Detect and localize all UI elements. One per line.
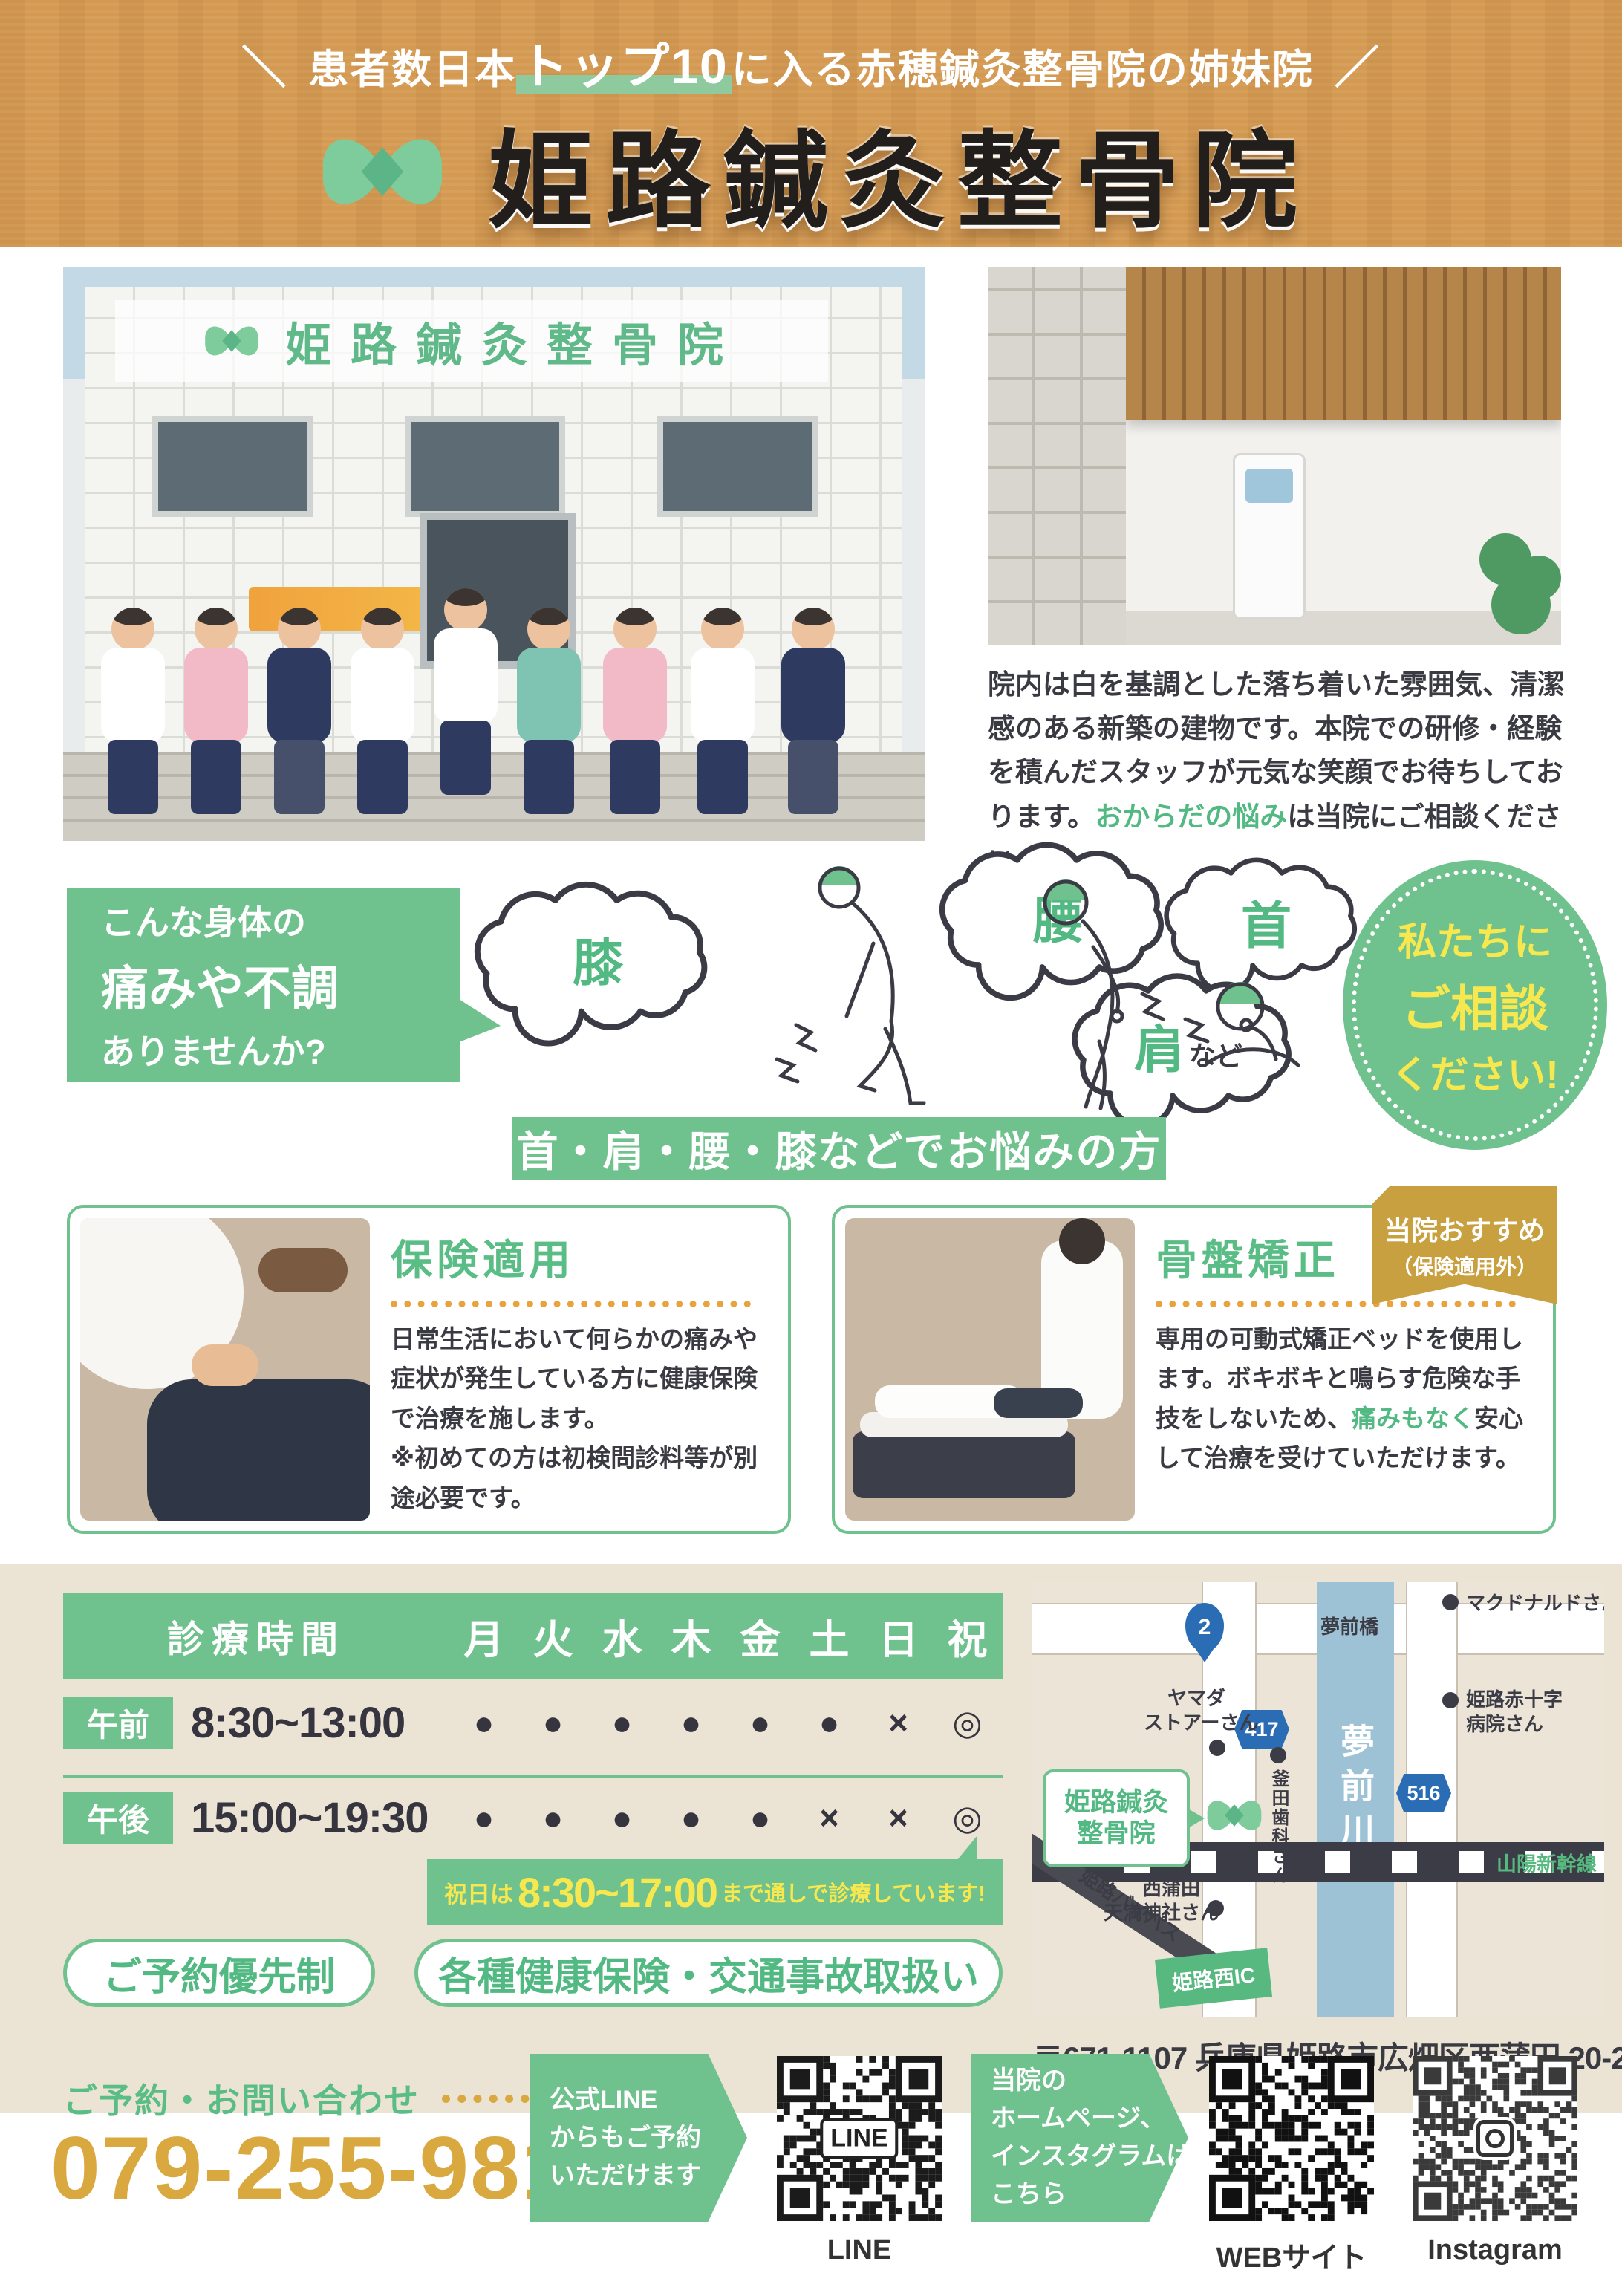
am-mark-wed: ● — [587, 1703, 657, 1743]
am-time: 8:30~13:00 — [191, 1698, 405, 1748]
day-mon: 月 — [449, 1607, 518, 1665]
pm-time: 15:00~19:30 — [191, 1793, 429, 1843]
ask-line3: ありませんか? — [101, 1025, 460, 1074]
staff-figure — [99, 608, 167, 816]
river-yumesaki: 夢前川 — [1317, 1582, 1394, 2017]
am-mark-mon: ● — [449, 1703, 518, 1743]
web-box-line2: ホームページ、 — [991, 2100, 1188, 2138]
instagram-qr-label: Instagram — [1413, 2234, 1577, 2266]
am-mark-sun: × — [864, 1703, 933, 1743]
pelvis-card-photo — [845, 1218, 1135, 1521]
am-mark-fri: ● — [726, 1703, 795, 1743]
staff-figure — [515, 608, 583, 816]
am-mark-tue: ● — [518, 1703, 587, 1743]
pm-mark-wed: ● — [587, 1798, 657, 1838]
bridge-label: 夢前橋 — [1320, 1615, 1378, 1639]
tagline-close-slash: ／ — [1314, 43, 1401, 93]
line-qr-label: LINE — [777, 2234, 942, 2266]
window — [405, 416, 565, 517]
mcdonalds-label: マクドナルドさん — [1466, 1591, 1604, 1616]
flyer-page: ＼患者数日本トップ10に入る赤穂鍼灸整骨院の姉妹院／ 姫路鍼灸整骨院 姫路鍼灸整… — [0, 0, 1622, 2296]
info-band: 診療時間 月 火 水 木 金 土 日 祝 午前 8:30~13:00 ● ● ●… — [0, 1564, 1622, 2113]
reservation-pill: ご予約優先制 — [63, 1939, 375, 2007]
contact-heading-text: ご予約・お問い合わせ — [63, 2074, 420, 2123]
map-poi-dot — [1442, 1594, 1459, 1610]
route-516-badge: 516 — [1396, 1774, 1451, 1812]
am-chip: 午前 — [63, 1697, 173, 1749]
interior-photo — [988, 267, 1561, 645]
website-qr-label: WEBサイト — [1209, 2234, 1374, 2275]
staff-figure — [182, 608, 250, 816]
pm-mark-sat: × — [795, 1798, 864, 1838]
dental-label: 釜田歯科さん — [1267, 1769, 1289, 1885]
insurance-card-photo — [80, 1218, 370, 1521]
insurance-card-title: 保険適用 — [391, 1227, 766, 1287]
day-sun: 日 — [864, 1607, 933, 1665]
yamada-label: ヤマダストアーさん — [1144, 1686, 1225, 1734]
instagram-qr-code — [1413, 2056, 1577, 2221]
line-box-line2: からもご予約 — [550, 2119, 747, 2157]
day-fri: 金 — [726, 1607, 795, 1665]
day-sat: 土 — [795, 1607, 864, 1665]
line-reserve-arrow: 公式LINE からもご予約 いただけます — [530, 2054, 747, 2222]
pm-mark-hol: ◎ — [933, 1798, 1002, 1838]
ask-line2: 痛みや不調 — [101, 951, 460, 1019]
badge-line2: （保険適用外） — [1392, 1251, 1537, 1281]
am-mark-sat: ● — [795, 1703, 864, 1743]
web-box-line4: こちら — [991, 2176, 1188, 2214]
holiday-pre: 祝日は — [444, 1876, 513, 1909]
staff-figure — [601, 608, 669, 816]
web-box-line3: インスタグラムは — [991, 2138, 1188, 2176]
map-poi-dot — [1270, 1747, 1286, 1763]
redcross-label: 姫路赤十字病院さん — [1466, 1688, 1563, 1736]
line-qr-code: LINE — [777, 2056, 942, 2221]
consult-line3: ください! — [1391, 1044, 1558, 1099]
building-sign: 姫路鍼灸整骨院 — [115, 300, 828, 382]
map-poi-dot — [1208, 1900, 1224, 1916]
window — [657, 416, 818, 517]
tagline-highlight: トップ10 — [516, 39, 731, 94]
insurance-pill: 各種健康保険・交通事故取扱い — [414, 1939, 1003, 2007]
am-mark-thu: ● — [657, 1703, 726, 1743]
exterior-photo: 姫路鍼灸整骨院 — [63, 267, 925, 841]
dotted-divider — [391, 1301, 751, 1307]
schedule-row-am: 午前 8:30~13:00 ● ● ● ● ● ● × ◎ — [63, 1694, 1003, 1752]
staff-figure — [431, 588, 500, 796]
tagline-pre: 患者数日本 — [308, 48, 516, 92]
intro-highlight: おからだの悩み — [1095, 801, 1287, 832]
schedule-divider — [63, 1775, 1003, 1778]
access-map: 夢前川 夢前橋 山陽新幹線 姫路バイパス 姫路西IC 2 417 516 マクド… — [1032, 1582, 1604, 2017]
pm-mark-fri: ● — [726, 1798, 795, 1838]
clinic-title: 姫路鍼灸整骨院 — [488, 95, 1309, 248]
clinic-map-label: 姫路鍼灸整骨院 — [1043, 1769, 1190, 1867]
consult-circle: 私たちに ご相談 ください! — [1343, 860, 1607, 1150]
website-qr-code — [1209, 2056, 1374, 2221]
pain-figures-illustration — [728, 847, 1367, 1122]
insurance-card-note: ※初めての方は初検問診料等が別途必要です。 — [391, 1438, 766, 1518]
speech-bubble-knee: 膝 — [468, 868, 728, 1049]
water-cooler — [1233, 453, 1306, 619]
am-mark-hol: ◎ — [933, 1703, 1002, 1743]
holiday-time: 8:30~17:00 — [518, 1868, 717, 1916]
staff-figure — [688, 608, 757, 816]
schedule-row-pm: 午後 15:00~19:30 ● ● ● ● ● × × ◎ — [63, 1789, 1003, 1847]
consult-line1: 私たちに — [1398, 911, 1552, 966]
day-hol: 祝 — [933, 1607, 1002, 1665]
map-poi-dot — [1442, 1692, 1459, 1708]
map-poi-dot — [1209, 1740, 1225, 1756]
day-thu: 木 — [657, 1607, 726, 1665]
clinic-map-bowtie-icon — [1202, 1792, 1267, 1839]
insurance-card-body: 日常生活において何らかの痛みや症状が発生している方に健康保険で治療を施します。 — [391, 1319, 766, 1438]
staff-figure — [779, 608, 847, 816]
pain-question-box: こんな身体の 痛みや不調 ありませんか? — [67, 888, 460, 1082]
web-instagram-arrow: 当院の ホームページ、 インスタグラムは こちら — [971, 2054, 1188, 2222]
consult-line2: ご相談 — [1401, 969, 1548, 1041]
day-wed: 水 — [587, 1607, 657, 1665]
shrine-label: 西蒲田天満神社さん — [1104, 1876, 1200, 1925]
pelvis-card-highlight: 痛みもなく — [1352, 1405, 1474, 1432]
badge-line1: 当院おすすめ — [1384, 1209, 1545, 1248]
sign-text: 姫路鍼灸整骨院 — [285, 308, 743, 374]
line-box-line3: いただけます — [550, 2157, 747, 2195]
schedule-header: 診療時間 月 火 水 木 金 土 日 祝 — [63, 1593, 1003, 1679]
pm-chip: 午後 — [63, 1792, 173, 1844]
holiday-hours-callout: 祝日は 8:30~17:00 まで通しで診療しています! — [427, 1859, 1003, 1925]
schedule-title: 診療時間 — [63, 1610, 449, 1663]
line-qr-center-label: LINE — [820, 2118, 898, 2159]
tagline: ＼患者数日本トップ10に入る赤穂鍼灸整骨院の姉妹院／ — [0, 27, 1622, 98]
pm-mark-mon: ● — [449, 1798, 518, 1838]
top-banner: ＼患者数日本トップ10に入る赤穂鍼灸整骨院の姉妹院／ 姫路鍼灸整骨院 — [0, 0, 1622, 247]
bubble-knee-label: 膝 — [468, 868, 728, 1049]
clinic-bowtie-logo-icon — [313, 119, 452, 224]
window — [152, 416, 313, 517]
day-tue: 火 — [518, 1607, 587, 1665]
insurance-card: 保険適用 日常生活において何らかの痛みや症状が発生している方に健康保険で治療を施… — [67, 1205, 791, 1534]
ask-line1: こんな身体の — [101, 896, 460, 945]
pm-mark-thu: ● — [657, 1798, 726, 1838]
plant — [1465, 526, 1561, 637]
pm-mark-sun: × — [864, 1798, 933, 1838]
tagline-open-slash: ＼ — [221, 43, 308, 93]
staff-figure — [348, 608, 417, 816]
dotted-divider — [1156, 1301, 1516, 1307]
tagline-post: に入る赤穂鍼灸整骨院の姉妹院 — [732, 48, 1314, 92]
stone-wall — [988, 267, 1126, 645]
river-label: 夢前川 — [1331, 1723, 1380, 1857]
wood-slat-wall — [1126, 267, 1561, 420]
staff-figure — [265, 608, 333, 816]
line-box-line1: 公式LINE — [550, 2081, 747, 2119]
pelvis-card: 当院おすすめ （保険適用外） 骨盤矯正 専用の可動式矯正ベッドを使用します。ボキ… — [832, 1205, 1556, 1534]
pm-mark-tue: ● — [518, 1798, 587, 1838]
instagram-icon — [1473, 2117, 1517, 2160]
sign-bowtie-icon — [201, 317, 263, 365]
shinkansen-label: 山陽新幹線 — [1496, 1848, 1597, 1877]
pain-headline-bar: 首・肩・腰・膝などでお悩みの方 — [512, 1117, 1166, 1180]
holiday-post: まで通しで診療しています! — [721, 1876, 986, 1908]
